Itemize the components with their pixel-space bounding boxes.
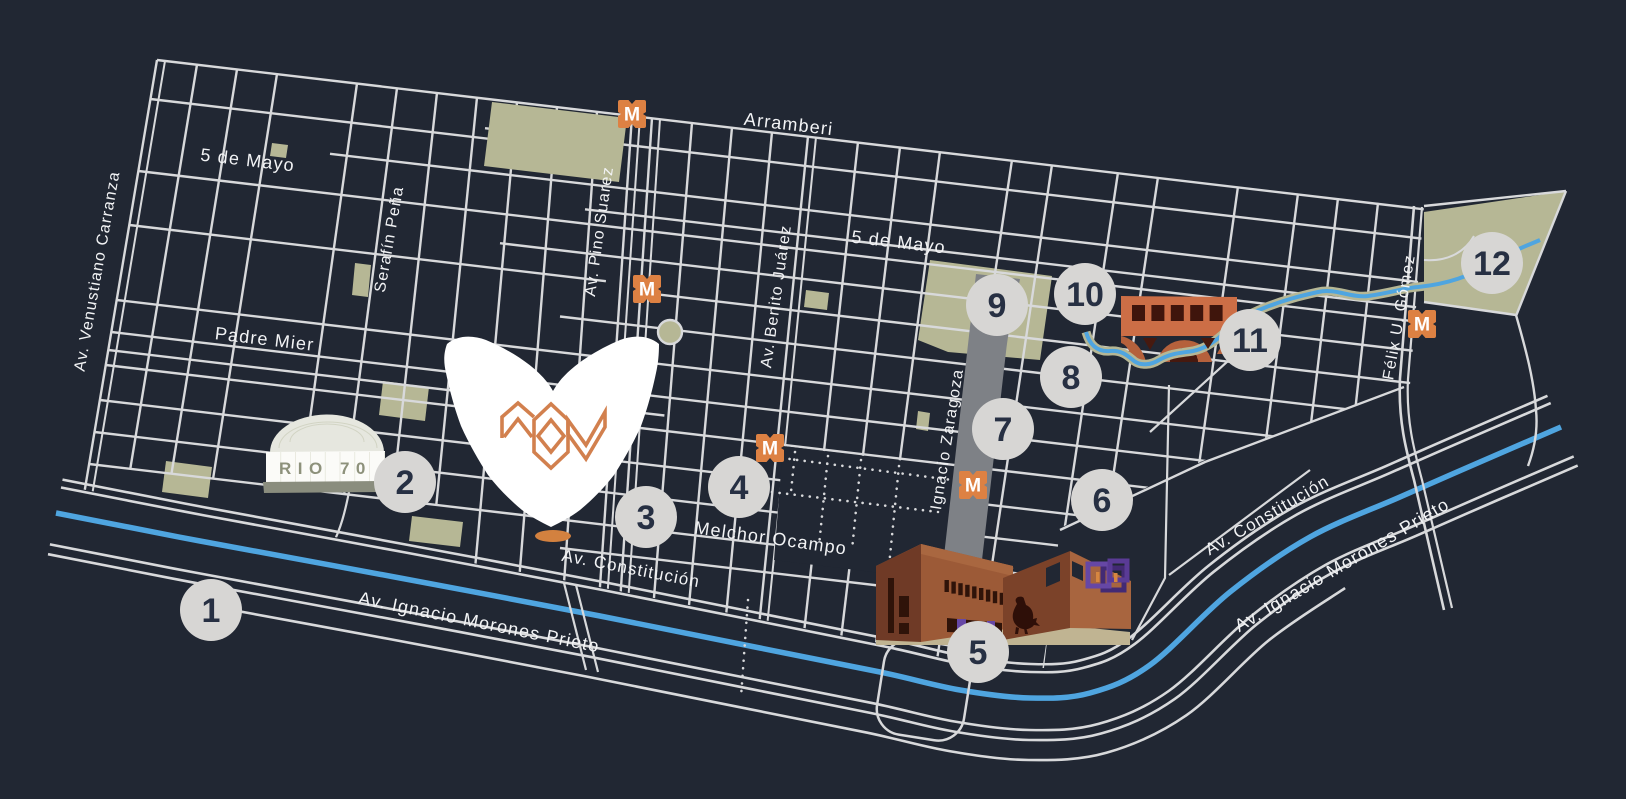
svg-text:RIO 70: RIO 70 xyxy=(279,459,372,478)
svg-text:2: 2 xyxy=(396,464,415,502)
svg-text:8: 8 xyxy=(1062,359,1081,397)
svg-text:1: 1 xyxy=(202,592,221,630)
svg-text:9: 9 xyxy=(988,287,1007,325)
svg-text:6: 6 xyxy=(1093,482,1112,520)
svg-text:4: 4 xyxy=(730,469,749,507)
svg-text:M: M xyxy=(639,279,655,301)
svg-text:12: 12 xyxy=(1473,245,1511,283)
svg-text:M: M xyxy=(762,438,778,460)
svg-text:M: M xyxy=(965,475,981,497)
svg-text:M: M xyxy=(624,104,640,126)
svg-text:7: 7 xyxy=(994,411,1013,449)
svg-text:3: 3 xyxy=(637,499,656,537)
svg-text:10: 10 xyxy=(1066,276,1104,314)
svg-text:11: 11 xyxy=(1232,322,1268,360)
svg-text:5: 5 xyxy=(969,634,988,672)
svg-text:M: M xyxy=(1414,314,1430,336)
